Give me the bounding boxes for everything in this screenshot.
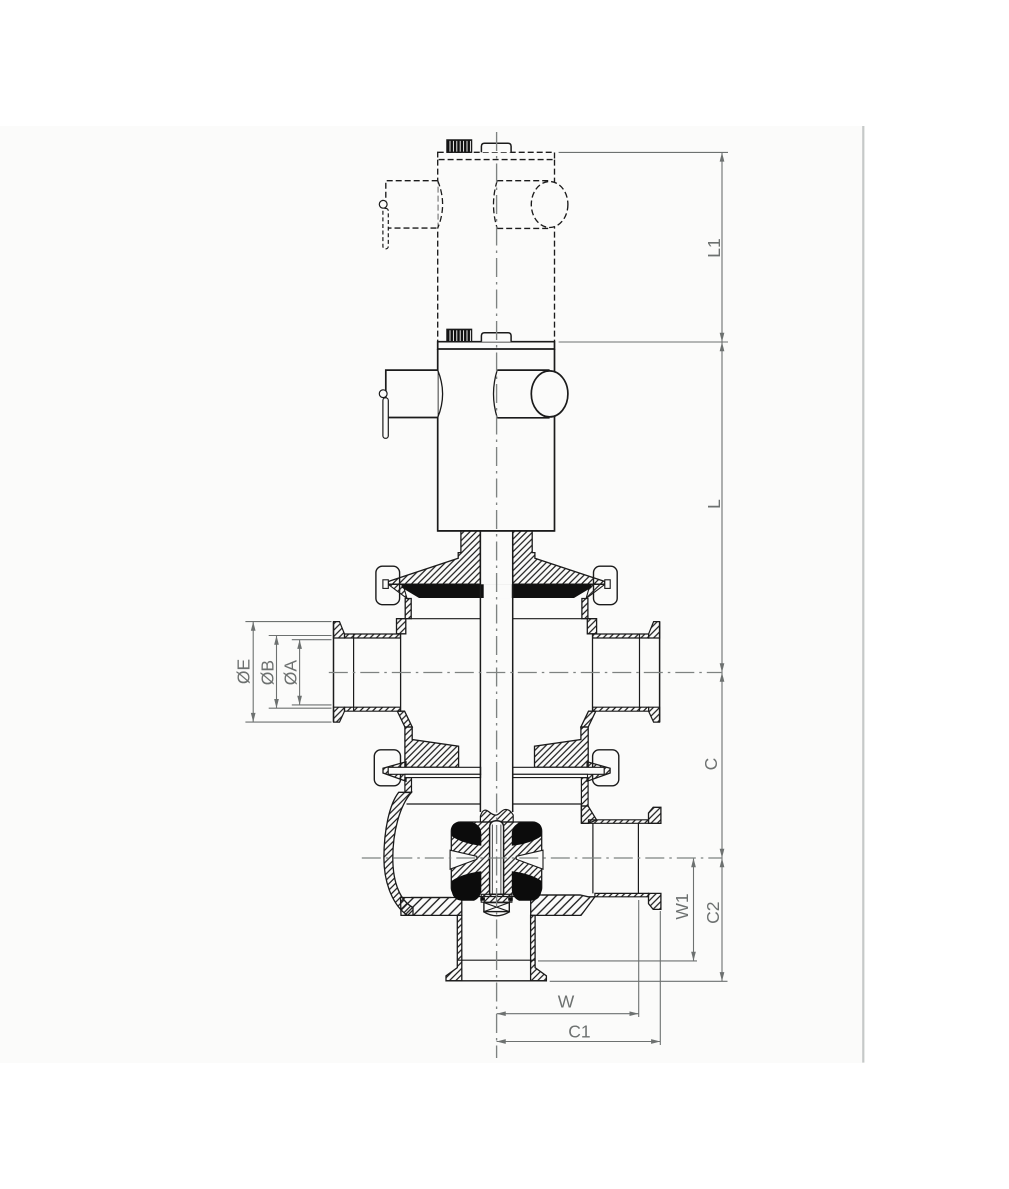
svg-text:ØB: ØB [258,660,278,685]
svg-text:ØA: ØA [281,660,301,686]
svg-text:W: W [558,992,575,1012]
svg-text:C: C [701,758,721,771]
svg-text:L: L [704,499,724,509]
svg-text:C2: C2 [703,902,723,924]
svg-text:W1: W1 [672,893,692,919]
svg-text:C1: C1 [568,1022,590,1042]
svg-text:L1: L1 [704,238,724,257]
svg-text:ØE: ØE [233,659,253,684]
